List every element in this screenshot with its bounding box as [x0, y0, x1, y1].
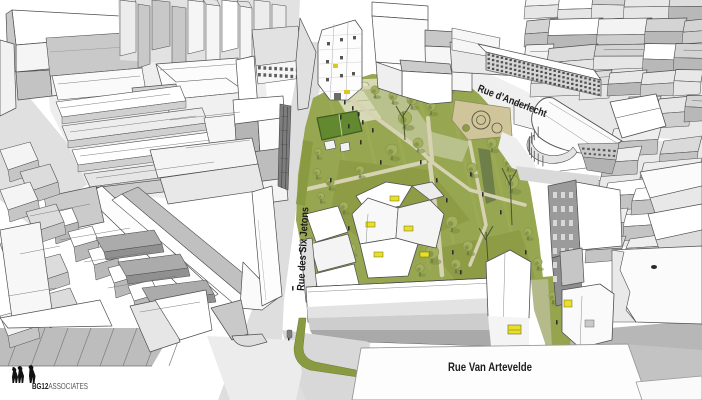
- svg-text:Rue Van Artevelde: Rue Van Artevelde: [448, 360, 532, 374]
- svg-text:BG12ASSOCIATES: BG12ASSOCIATES: [32, 382, 88, 391]
